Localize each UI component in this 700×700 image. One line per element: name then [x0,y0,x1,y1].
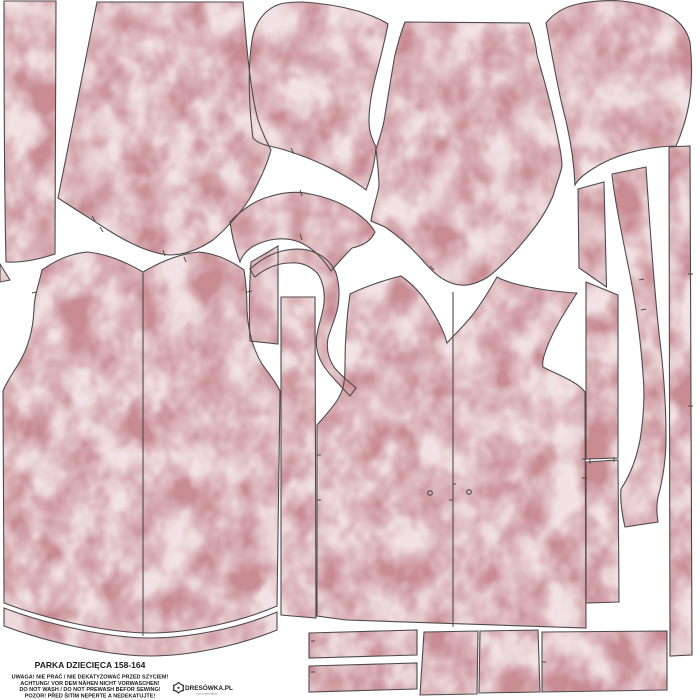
svg-text:UWAGA! NIE PRAĆ / NIE DEKATYZO: UWAGA! NIE PRAĆ / NIE DEKATYZOWAĆ PRZED … [12,672,169,680]
svg-text:POZOR! PŘED ŠITÍM NEPERTE A NE: POZOR! PŘED ŠITÍM NEPERTE A NEDEKATUJTE! [25,692,156,700]
svg-text:moc materiałów: moc materiałów [196,692,218,696]
svg-text:ACHTUNG! VOR DEM NÄHEN NICHT V: ACHTUNG! VOR DEM NÄHEN NICHT VORWASCHEN! [20,680,159,687]
svg-text:PARKA DZIECIĘCA 158-164: PARKA DZIECIĘCA 158-164 [35,660,146,670]
svg-text:DO NOT WASH / DO NOT PREWASH B: DO NOT WASH / DO NOT PREWASH BEFOR SEWIN… [19,687,160,693]
